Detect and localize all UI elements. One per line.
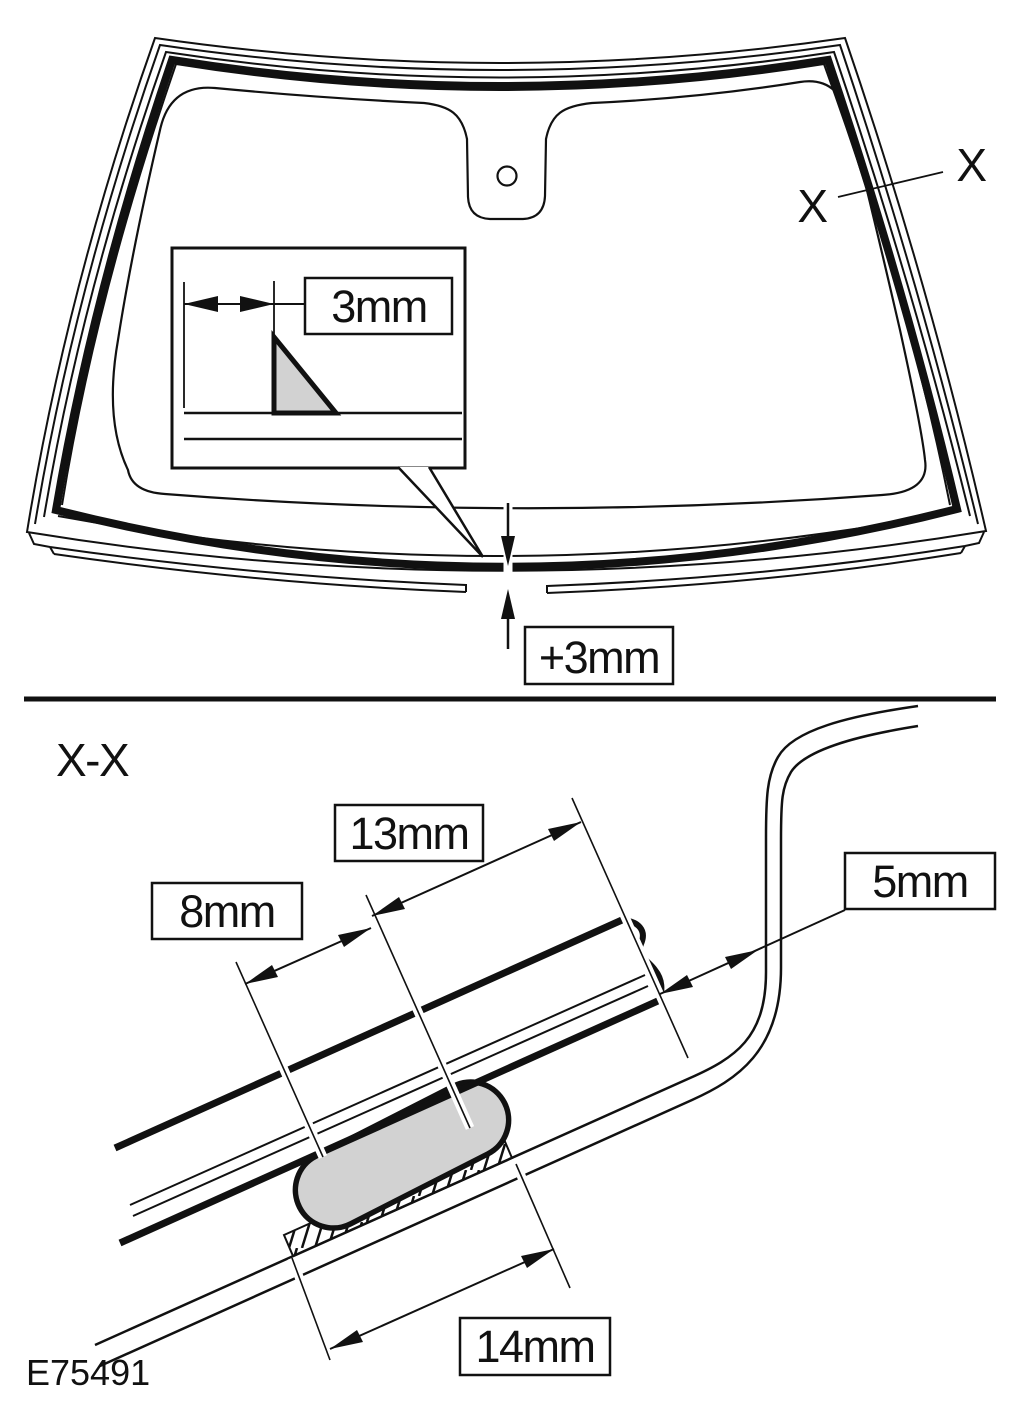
arrow-14mm-right-icon — [521, 1249, 554, 1268]
glass-top-surface — [115, 920, 622, 1148]
dimension-plus3mm-label: +3mm — [539, 632, 659, 683]
dimension-14mm-label: 14mm — [475, 1321, 594, 1372]
extension-line-strip-right — [516, 1164, 570, 1288]
dimension-labels: 13mm 8mm 5mm 14mm — [152, 805, 995, 1375]
arrow-5mm-right-icon — [725, 950, 758, 969]
section-view-title: X-X — [56, 734, 129, 786]
dimension-lines — [245, 822, 845, 1349]
arrow-14mm-left-icon — [330, 1330, 363, 1349]
section-marker-outer: X — [956, 139, 986, 191]
dimension-arrowheads — [245, 822, 758, 1349]
section-view: X-X — [56, 706, 995, 1375]
dimension-8mm-label: 8mm — [179, 886, 275, 937]
technical-drawing: 3mm +3mm X X X-X — [0, 0, 1021, 1407]
extension-line-strip-left — [292, 1258, 330, 1360]
body-panel-outer-line — [95, 706, 918, 1345]
dimension-13mm-label: 13mm — [349, 808, 468, 859]
service-manual-figure: 3mm +3mm X X X-X — [0, 0, 1021, 1407]
extension-line-glass-edge — [572, 798, 688, 1058]
arrow-13mm-left-icon — [372, 897, 405, 916]
detail-callout: 3mm — [172, 248, 483, 557]
arrow-13mm-right-icon — [548, 822, 581, 841]
section-marker-inner: X — [797, 180, 827, 232]
mirror-mount-hole — [498, 167, 517, 186]
dimension-5mm-label: 5mm — [872, 856, 968, 907]
down-arrow-icon — [501, 536, 515, 566]
callout-pointer-edges — [398, 467, 483, 557]
arrow-5mm-left-icon — [660, 975, 693, 994]
arrow-8mm-left-icon — [245, 965, 278, 984]
figure-code: E75491 — [26, 1352, 150, 1393]
arrow-8mm-right-icon — [338, 928, 371, 947]
up-arrow-icon — [501, 589, 515, 619]
dimension-3mm-label: 3mm — [331, 281, 427, 332]
